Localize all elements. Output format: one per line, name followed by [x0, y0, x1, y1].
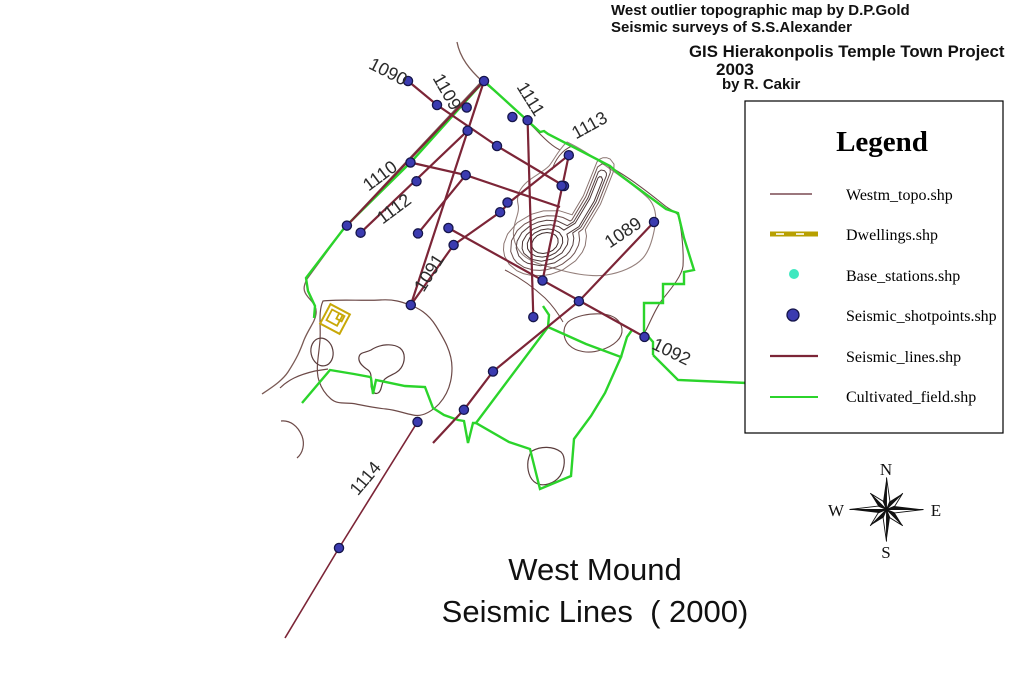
svg-text:West outlier topographic map b: West outlier topographic map by D.P.Gold — [611, 2, 910, 19]
svg-text:W: W — [828, 501, 845, 520]
svg-text:West Mound: West Mound — [508, 552, 681, 587]
svg-text:Seismic Lines ( 2000): Seismic Lines ( 2000) — [442, 594, 749, 629]
svg-text:1091: 1091 — [410, 250, 448, 295]
svg-text:Westm_topo.shp: Westm_topo.shp — [846, 187, 953, 204]
svg-text:Seismic_shotpoints.shp: Seismic_shotpoints.shp — [846, 308, 997, 325]
svg-text:GIS Hierakonpolis Temple Town: GIS Hierakonpolis Temple Town Project — [689, 42, 1005, 61]
svg-text:E: E — [931, 501, 941, 520]
svg-text:1114: 1114 — [346, 458, 385, 499]
svg-text:by R. Cakir: by R. Cakir — [722, 76, 801, 93]
svg-text:1089: 1089 — [601, 213, 645, 252]
svg-text:Legend: Legend — [836, 126, 928, 158]
svg-text:Cultivated_field.shp: Cultivated_field.shp — [846, 389, 976, 406]
svg-text:Seismic surveys of S.S.Alexand: Seismic surveys of S.S.Alexander — [611, 19, 852, 36]
svg-text:1112: 1112 — [373, 190, 415, 228]
svg-text:Base_stations.shp: Base_stations.shp — [846, 268, 960, 285]
svg-text:N: N — [880, 460, 892, 479]
svg-text:1113: 1113 — [568, 107, 610, 143]
svg-text:S: S — [881, 543, 890, 562]
svg-text:Dwellings.shp: Dwellings.shp — [846, 227, 938, 244]
svg-text:Seismic_lines.shp: Seismic_lines.shp — [846, 349, 961, 366]
svg-text:1092: 1092 — [649, 334, 694, 370]
svg-text:1090: 1090 — [366, 54, 411, 90]
